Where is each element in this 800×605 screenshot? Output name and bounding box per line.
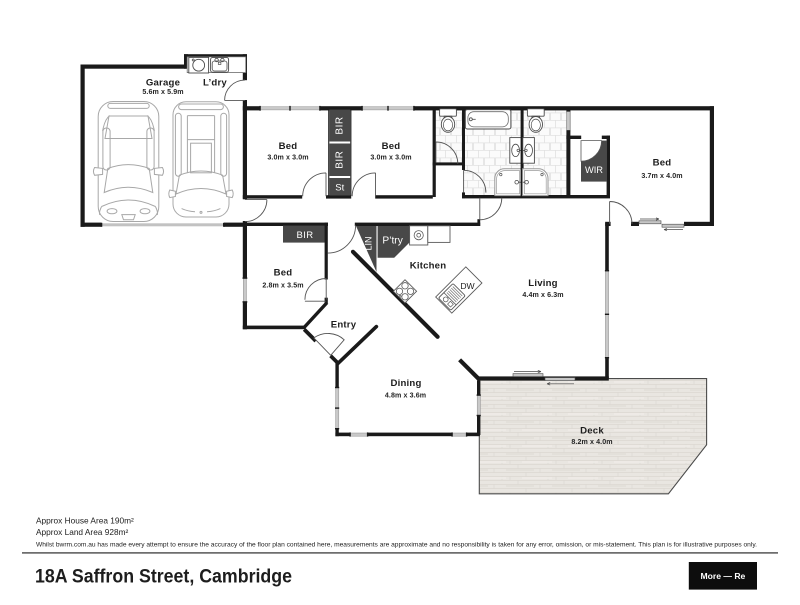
svg-text:St: St (335, 182, 344, 193)
svg-text:3.0m x 3.0m: 3.0m x 3.0m (267, 153, 308, 161)
svg-text:WIR: WIR (585, 165, 603, 175)
svg-text:Bed: Bed (279, 141, 298, 152)
svg-text:Deck: Deck (580, 426, 604, 437)
svg-text:BIR: BIR (296, 230, 313, 241)
svg-text:P’try: P’try (382, 236, 403, 247)
svg-text:8.2m x 4.0m: 8.2m x 4.0m (571, 438, 612, 446)
svg-text:More — Re: More — Re (700, 571, 745, 581)
svg-text:Bed: Bed (382, 141, 401, 152)
svg-text:L’dry: L’dry (203, 78, 227, 89)
svg-text:4.8m x 3.6m: 4.8m x 3.6m (385, 391, 426, 399)
svg-text:Approx House Area 190m²: Approx House Area 190m² (36, 516, 134, 526)
svg-text:LIN: LIN (364, 236, 374, 250)
svg-text:Dining: Dining (390, 378, 421, 389)
svg-text:3.7m x 4.0m: 3.7m x 4.0m (641, 172, 682, 180)
svg-text:4.4m x 6.3m: 4.4m x 6.3m (522, 291, 563, 299)
svg-text:Approx Land Area 928m²: Approx Land Area 928m² (36, 527, 128, 537)
svg-text:Bed: Bed (274, 268, 293, 279)
svg-text:BIR: BIR (334, 116, 345, 134)
svg-text:5.6m x 5.9m: 5.6m x 5.9m (142, 88, 183, 96)
svg-text:Living: Living (528, 278, 557, 289)
svg-text:Bed: Bed (653, 158, 672, 169)
svg-text:3.0m x 3.0m: 3.0m x 3.0m (370, 153, 411, 161)
svg-text:2.8m x 3.5m: 2.8m x 3.5m (262, 281, 303, 289)
svg-text:Whilst bwrm.com.au has made ev: Whilst bwrm.com.au has made every attemp… (36, 542, 757, 549)
svg-text:BIR: BIR (334, 151, 345, 169)
svg-text:Entry: Entry (331, 320, 357, 331)
svg-text:Garage: Garage (146, 78, 180, 89)
svg-text:Kitchen: Kitchen (410, 261, 447, 272)
svg-text:DW: DW (460, 281, 475, 291)
svg-text:18A Saffron Street, Cambridge: 18A Saffron Street, Cambridge (35, 566, 292, 588)
